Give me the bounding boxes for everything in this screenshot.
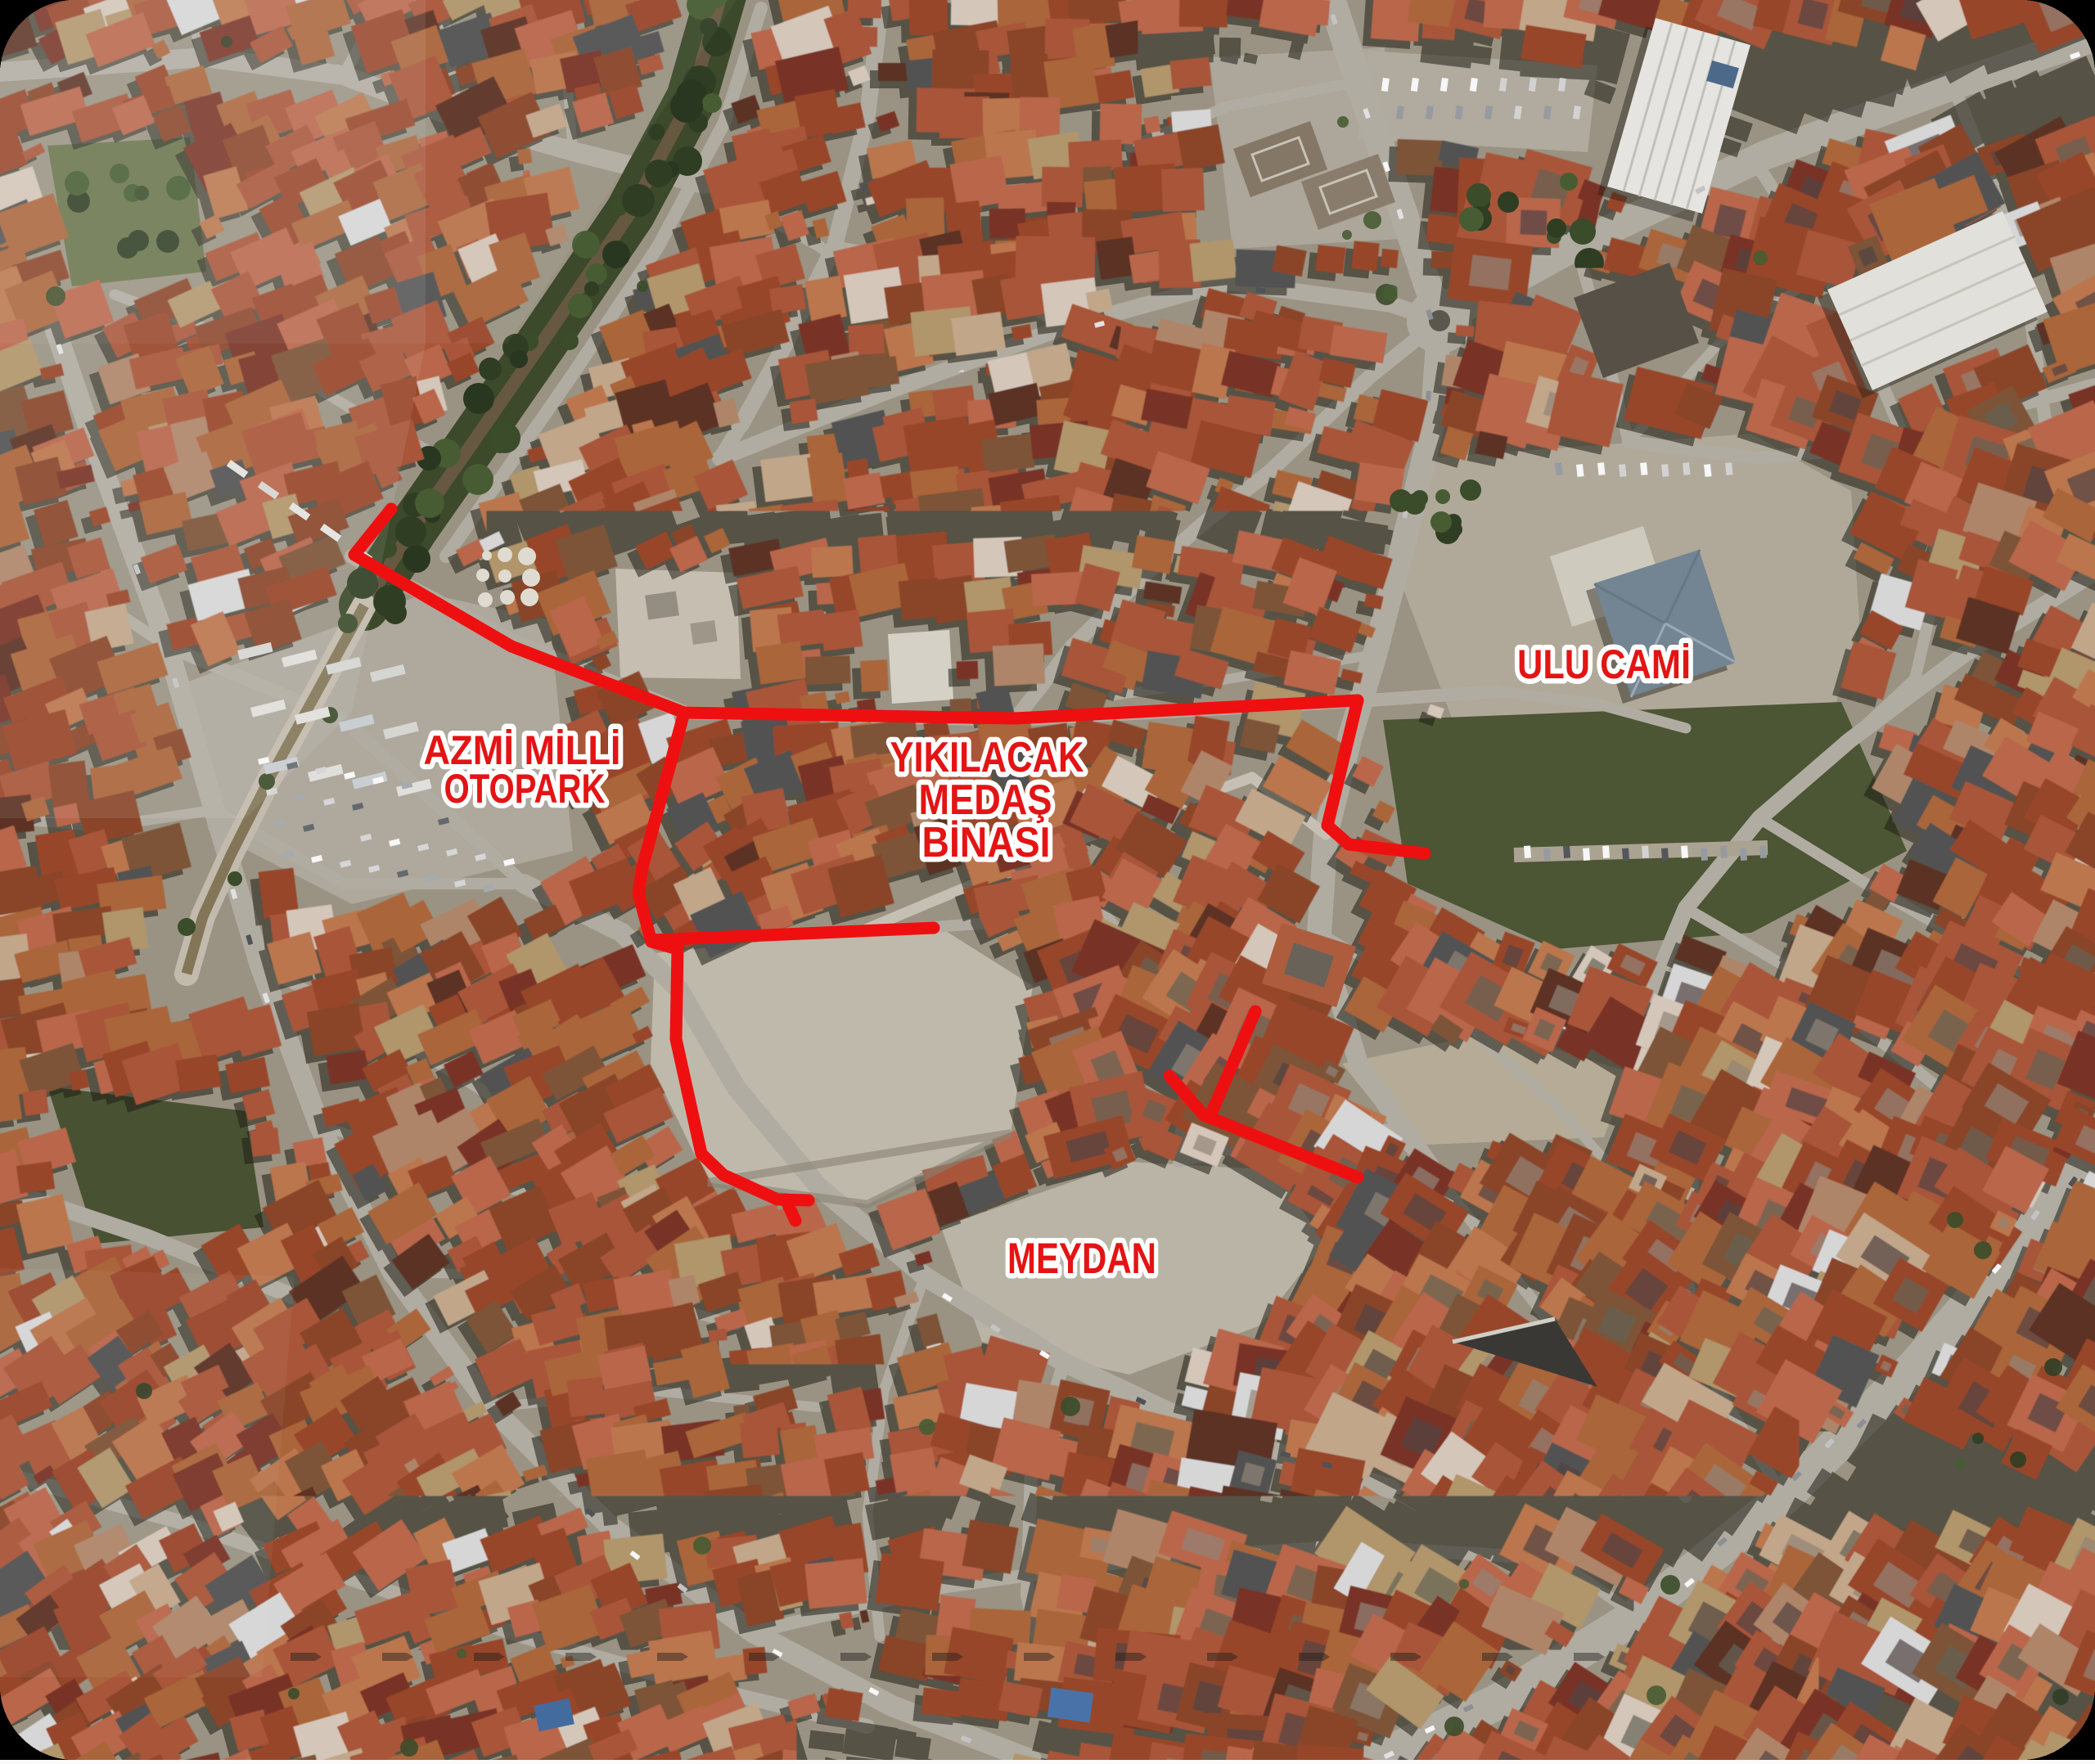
svg-text:YIKILACAK: YIKILACAK bbox=[890, 734, 1084, 781]
svg-text:BİNASI: BİNASI bbox=[922, 819, 1051, 866]
svg-text:OTOPARK: OTOPARK bbox=[444, 766, 606, 812]
svg-text:MEDAŞ: MEDAŞ bbox=[919, 776, 1052, 824]
svg-text:MEYDAN: MEYDAN bbox=[1007, 1235, 1156, 1283]
svg-text:ULU CAMİ: ULU CAMİ bbox=[1517, 641, 1691, 687]
